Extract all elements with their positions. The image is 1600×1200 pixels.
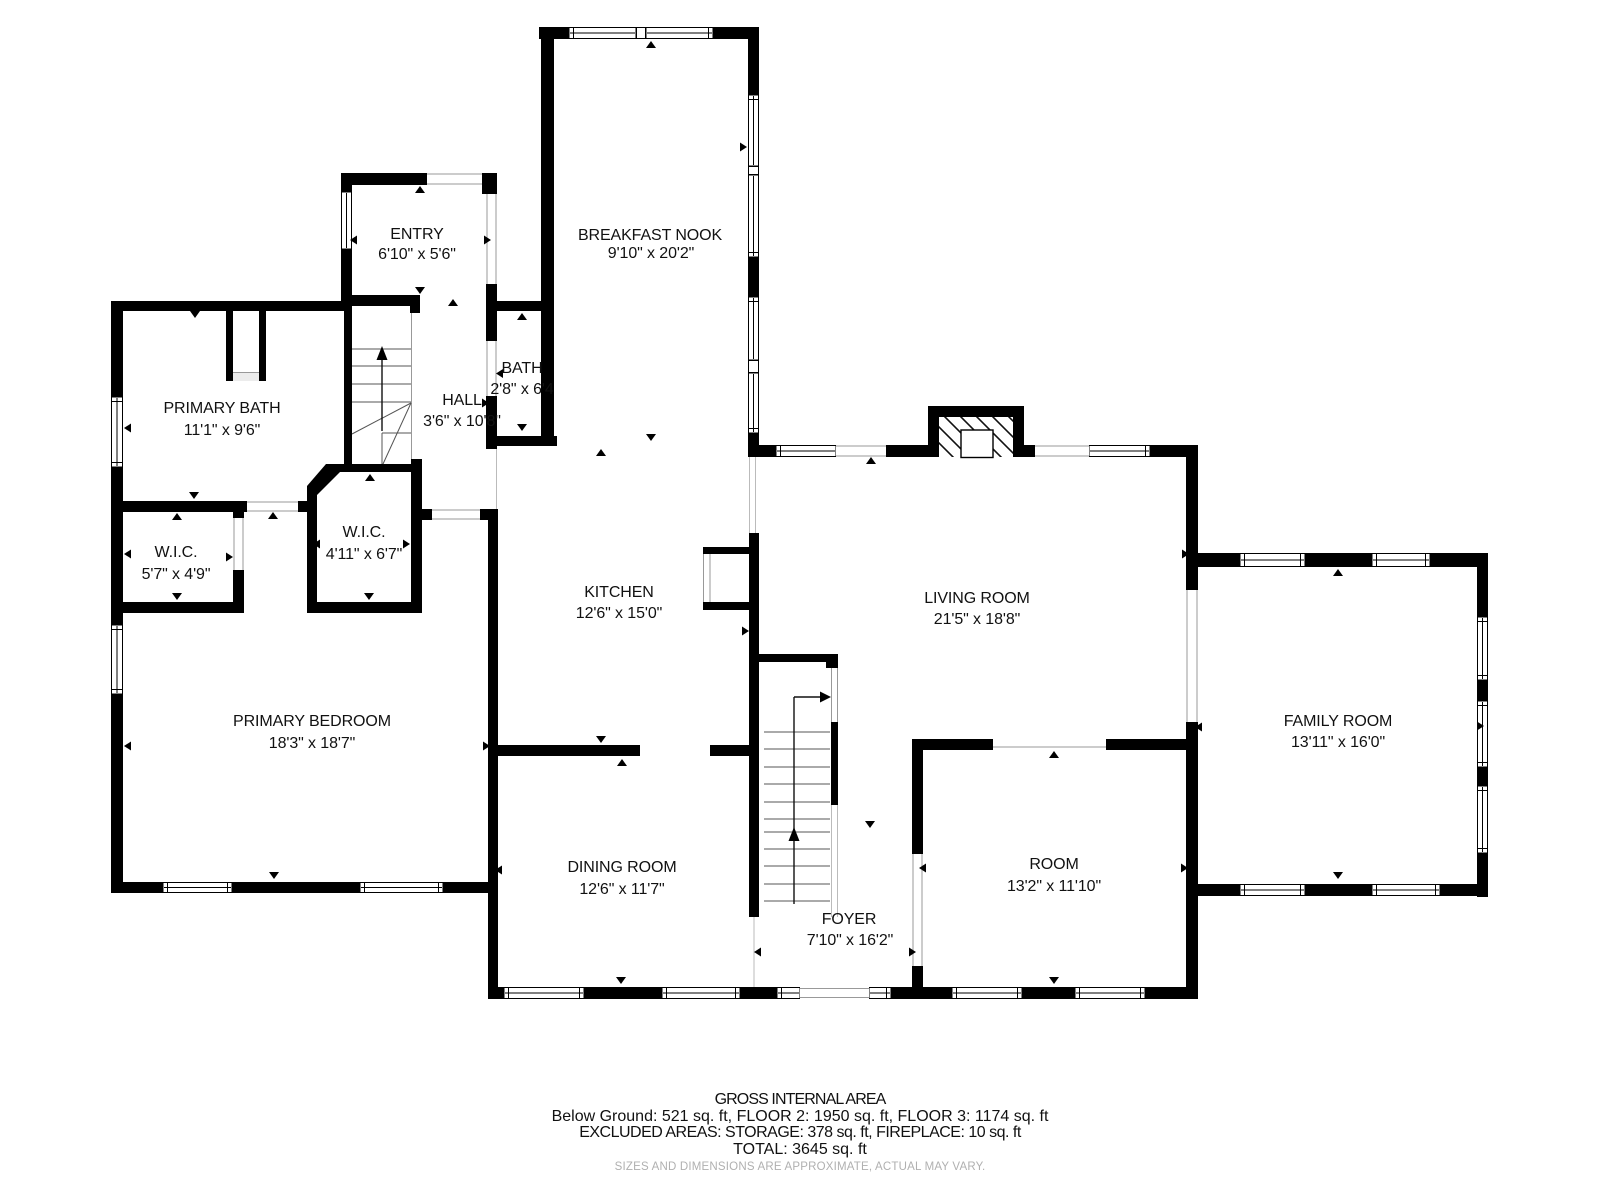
- svg-text:EXCLUDED AREAS: STORAGE: 378 s: EXCLUDED AREAS: STORAGE: 378 sq. ft, FIR…: [579, 1124, 1022, 1141]
- svg-text:ENTRY: ENTRY: [390, 226, 444, 243]
- svg-text:11'1" x 9'6": 11'1" x 9'6": [184, 422, 260, 439]
- svg-text:4'11" x 6'7": 4'11" x 6'7": [326, 546, 402, 563]
- svg-text:12'6" x 11'7": 12'6" x 11'7": [579, 881, 664, 898]
- svg-text:7'10" x 16'2": 7'10" x 16'2": [807, 932, 893, 949]
- svg-text:Below Ground: 521 sq. ft, FLOO: Below Ground: 521 sq. ft, FLOOR 2: 1950 …: [552, 1108, 1049, 1125]
- svg-text:FAMILY ROOM: FAMILY ROOM: [1284, 713, 1393, 730]
- svg-text:HALL: HALL: [442, 392, 482, 409]
- svg-text:W.I.C.: W.I.C.: [343, 524, 386, 541]
- svg-text:DINING ROOM: DINING ROOM: [567, 859, 676, 876]
- svg-text:SIZES AND DIMENSIONS ARE APPRO: SIZES AND DIMENSIONS ARE APPROXIMATE, AC…: [615, 1161, 986, 1173]
- svg-text:2'8" x 6'4: 2'8" x 6'4: [490, 381, 553, 398]
- svg-text:GROSS INTERNAL AREA: GROSS INTERNAL AREA: [715, 1091, 887, 1108]
- svg-text:LIVING ROOM: LIVING ROOM: [924, 590, 1030, 607]
- svg-text:21'5" x 18'8": 21'5" x 18'8": [934, 611, 1020, 628]
- svg-text:3'6" x 10'8": 3'6" x 10'8": [423, 413, 501, 430]
- svg-text:12'6" x 15'0": 12'6" x 15'0": [576, 605, 662, 622]
- svg-text:13'11" x 16'0": 13'11" x 16'0": [1291, 734, 1385, 751]
- svg-text:18'3" x 18'7": 18'3" x 18'7": [269, 735, 355, 752]
- svg-text:PRIMARY BEDROOM: PRIMARY BEDROOM: [233, 713, 391, 730]
- svg-text:KITCHEN: KITCHEN: [584, 584, 654, 601]
- svg-text:BATH: BATH: [501, 360, 542, 377]
- svg-text:6'10" x 5'6": 6'10" x 5'6": [378, 246, 456, 263]
- svg-text:9'10" x 20'2": 9'10" x 20'2": [608, 245, 694, 262]
- svg-text:5'7" x 4'9": 5'7" x 4'9": [142, 566, 211, 583]
- svg-text:FOYER: FOYER: [822, 911, 877, 928]
- svg-text:PRIMARY BATH: PRIMARY BATH: [163, 400, 280, 417]
- svg-text:13'2" x 11'10": 13'2" x 11'10": [1007, 878, 1101, 895]
- svg-text:BREAKFAST NOOK: BREAKFAST NOOK: [578, 227, 723, 244]
- svg-text:TOTAL: 3645 sq. ft: TOTAL: 3645 sq. ft: [733, 1141, 867, 1158]
- svg-text:W.I.C.: W.I.C.: [155, 544, 198, 561]
- svg-text:ROOM: ROOM: [1029, 856, 1078, 873]
